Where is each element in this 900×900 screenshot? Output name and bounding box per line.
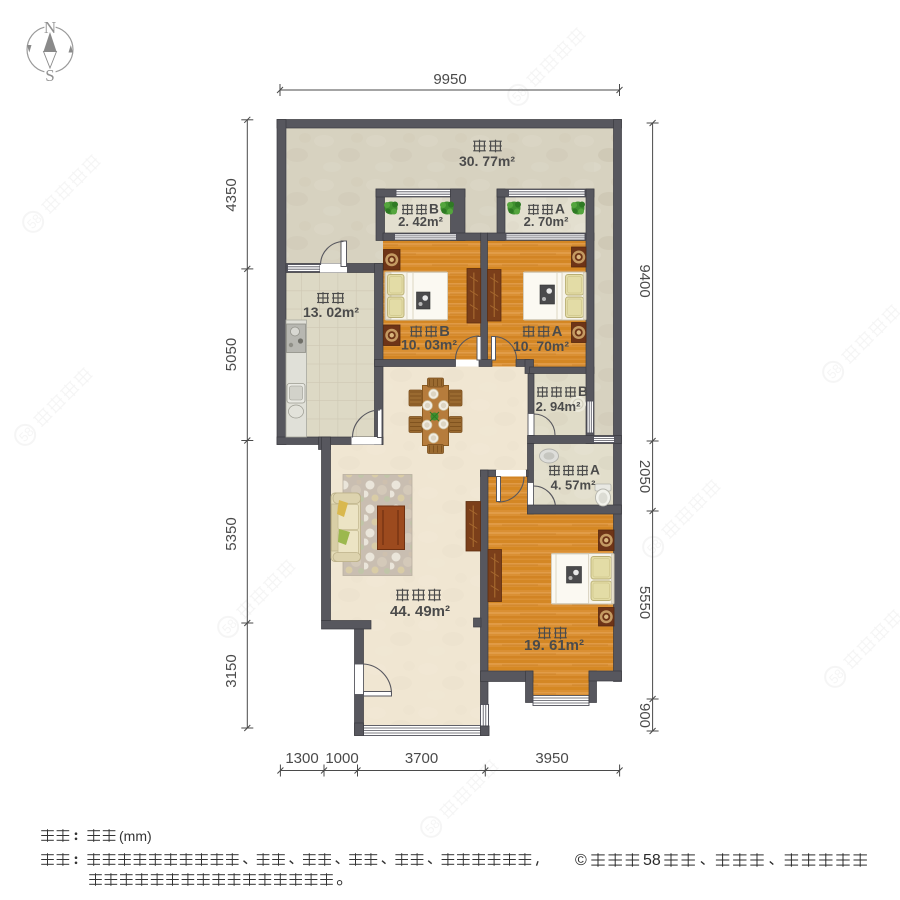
svg-text:5050: 5050 (223, 338, 240, 371)
svg-text:13. 02m²: 13. 02m² (303, 304, 359, 320)
svg-text:30. 77m²: 30. 77m² (459, 153, 515, 169)
svg-text:3150: 3150 (223, 654, 240, 687)
svg-text:3950: 3950 (535, 750, 568, 767)
svg-text:5350: 5350 (223, 517, 240, 550)
svg-text:2050: 2050 (636, 460, 653, 493)
svg-text:©: © (575, 852, 587, 869)
svg-text:2. 94m²: 2. 94m² (536, 399, 581, 414)
svg-text:(mm): (mm) (119, 828, 152, 844)
svg-text:4. 57m²: 4. 57m² (551, 478, 596, 493)
svg-text:B: B (578, 384, 588, 399)
svg-text:3700: 3700 (405, 750, 438, 767)
svg-text:58: 58 (643, 852, 661, 869)
svg-text:10. 03m²: 10. 03m² (401, 337, 457, 353)
svg-text:9400: 9400 (636, 264, 653, 297)
svg-text:5550: 5550 (636, 586, 653, 619)
svg-text:A: A (590, 463, 600, 478)
svg-text:1000: 1000 (325, 750, 358, 767)
svg-text:900: 900 (636, 703, 653, 728)
svg-text:2. 70m²: 2. 70m² (524, 214, 569, 229)
svg-text:10. 70m²: 10. 70m² (513, 338, 569, 354)
svg-text:9950: 9950 (433, 71, 466, 88)
svg-text:2. 42m²: 2. 42m² (398, 214, 443, 229)
svg-text:44. 49m²: 44. 49m² (390, 603, 450, 620)
svg-text:19. 61m²: 19. 61m² (524, 637, 584, 654)
svg-text:1300: 1300 (285, 750, 318, 767)
svg-text:4350: 4350 (223, 178, 240, 211)
